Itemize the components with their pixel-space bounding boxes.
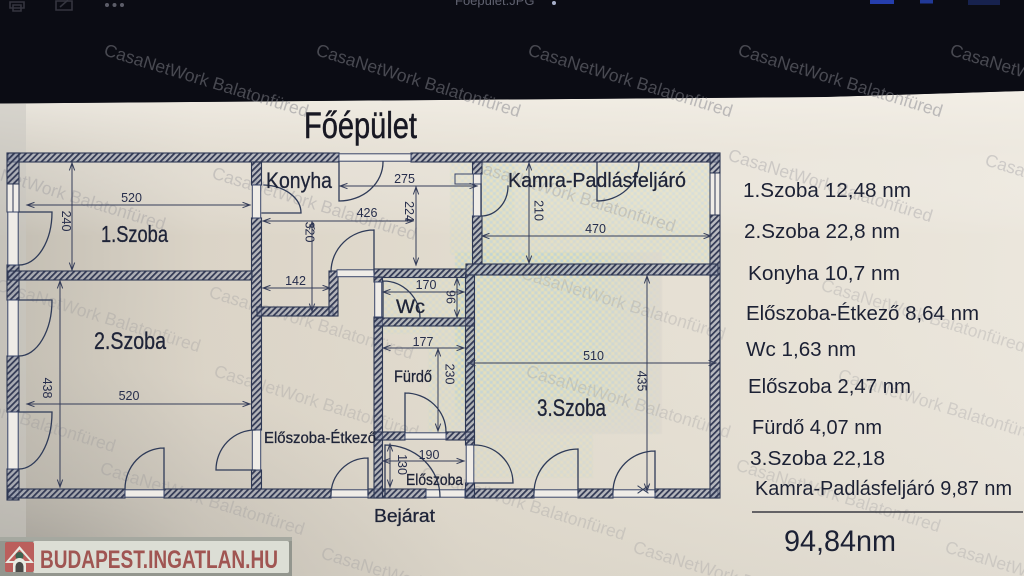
svg-text:190: 190 [419, 448, 440, 462]
svg-text:Előszoba-Étkező: Előszoba-Étkező [264, 428, 376, 447]
svg-text:Kamra-Padlásfeljáró: Kamra-Padlásfeljáró [508, 169, 686, 192]
svg-text:Előszoba: Előszoba [406, 472, 463, 489]
svg-text:3.Szoba: 3.Szoba [537, 395, 607, 422]
svg-text:2.Szoba 22,8 nm: 2.Szoba 22,8 nm [744, 221, 900, 243]
svg-text:470: 470 [585, 222, 606, 236]
svg-text:3.Szoba 22,18: 3.Szoba 22,18 [750, 448, 885, 470]
svg-text:Wc 1,63 nm: Wc 1,63 nm [746, 339, 856, 361]
svg-text:520: 520 [121, 191, 142, 205]
svg-text:240: 240 [59, 211, 73, 232]
svg-text:435: 435 [635, 371, 649, 392]
svg-text:177: 177 [413, 335, 434, 349]
svg-text:96: 96 [444, 290, 458, 304]
svg-text:Főépület: Főépület [304, 105, 418, 146]
svg-text:Konyha 10,7 nm: Konyha 10,7 nm [748, 263, 900, 285]
svg-text:Fürdő 4,07 nm: Fürdő 4,07 nm [752, 417, 882, 439]
svg-text:210: 210 [532, 200, 546, 221]
svg-text:510: 510 [583, 349, 604, 363]
svg-text:Előszoba 2,47 nm: Előszoba 2,47 nm [748, 376, 911, 398]
svg-text:Fürdő: Fürdő [394, 368, 432, 386]
svg-text:130: 130 [395, 454, 409, 475]
svg-text:Bejárat: Bejárat [374, 506, 435, 526]
svg-text:Konyha: Konyha [266, 168, 333, 193]
svg-text:Wc: Wc [396, 296, 425, 318]
svg-text:320: 320 [303, 222, 317, 243]
svg-text:1.Szoba: 1.Szoba [101, 221, 168, 247]
svg-text:Előszoba-Étkező 8,64 nm: Előszoba-Étkező 8,64 nm [746, 302, 979, 325]
svg-text:170: 170 [416, 278, 437, 292]
svg-text:438: 438 [40, 378, 54, 399]
svg-text:94,84nm: 94,84nm [784, 525, 896, 558]
svg-text:230: 230 [443, 364, 457, 385]
svg-text:2.Szoba: 2.Szoba [94, 328, 167, 355]
svg-text:142: 142 [285, 274, 306, 288]
svg-text:Kamra-Padlásfeljáró 9,87 nm: Kamra-Padlásfeljáró 9,87 nm [755, 478, 1012, 500]
svg-text:275: 275 [394, 172, 415, 186]
svg-text:520: 520 [119, 389, 140, 403]
svg-text:BUDAPEST.INGATLAN.HU: BUDAPEST.INGATLAN.HU [40, 546, 278, 574]
svg-text:1.Szoba 12,48 nm: 1.Szoba 12,48 nm [743, 180, 911, 202]
svg-text:224: 224 [402, 201, 416, 222]
svg-text:Főépület.JPG: Főépület.JPG [455, 0, 535, 8]
svg-text:426: 426 [357, 206, 378, 220]
